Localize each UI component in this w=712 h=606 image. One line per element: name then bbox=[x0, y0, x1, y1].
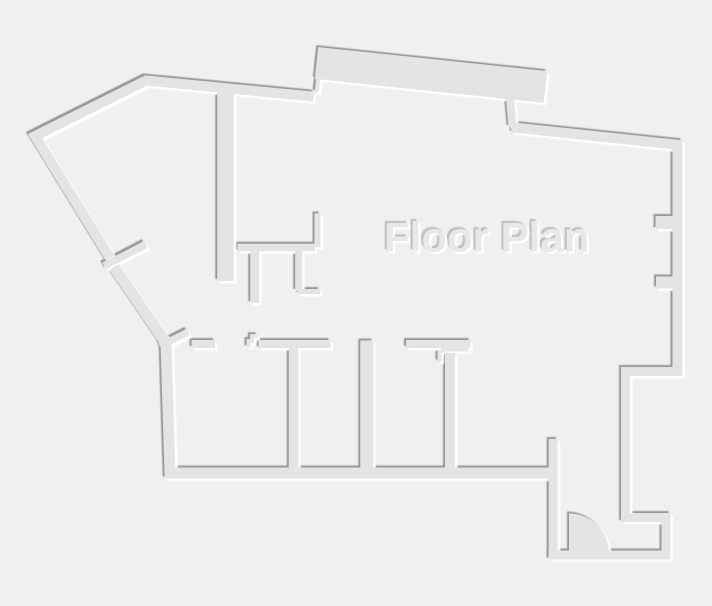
svg-text:Floor Plan: Floor Plan bbox=[384, 213, 589, 260]
